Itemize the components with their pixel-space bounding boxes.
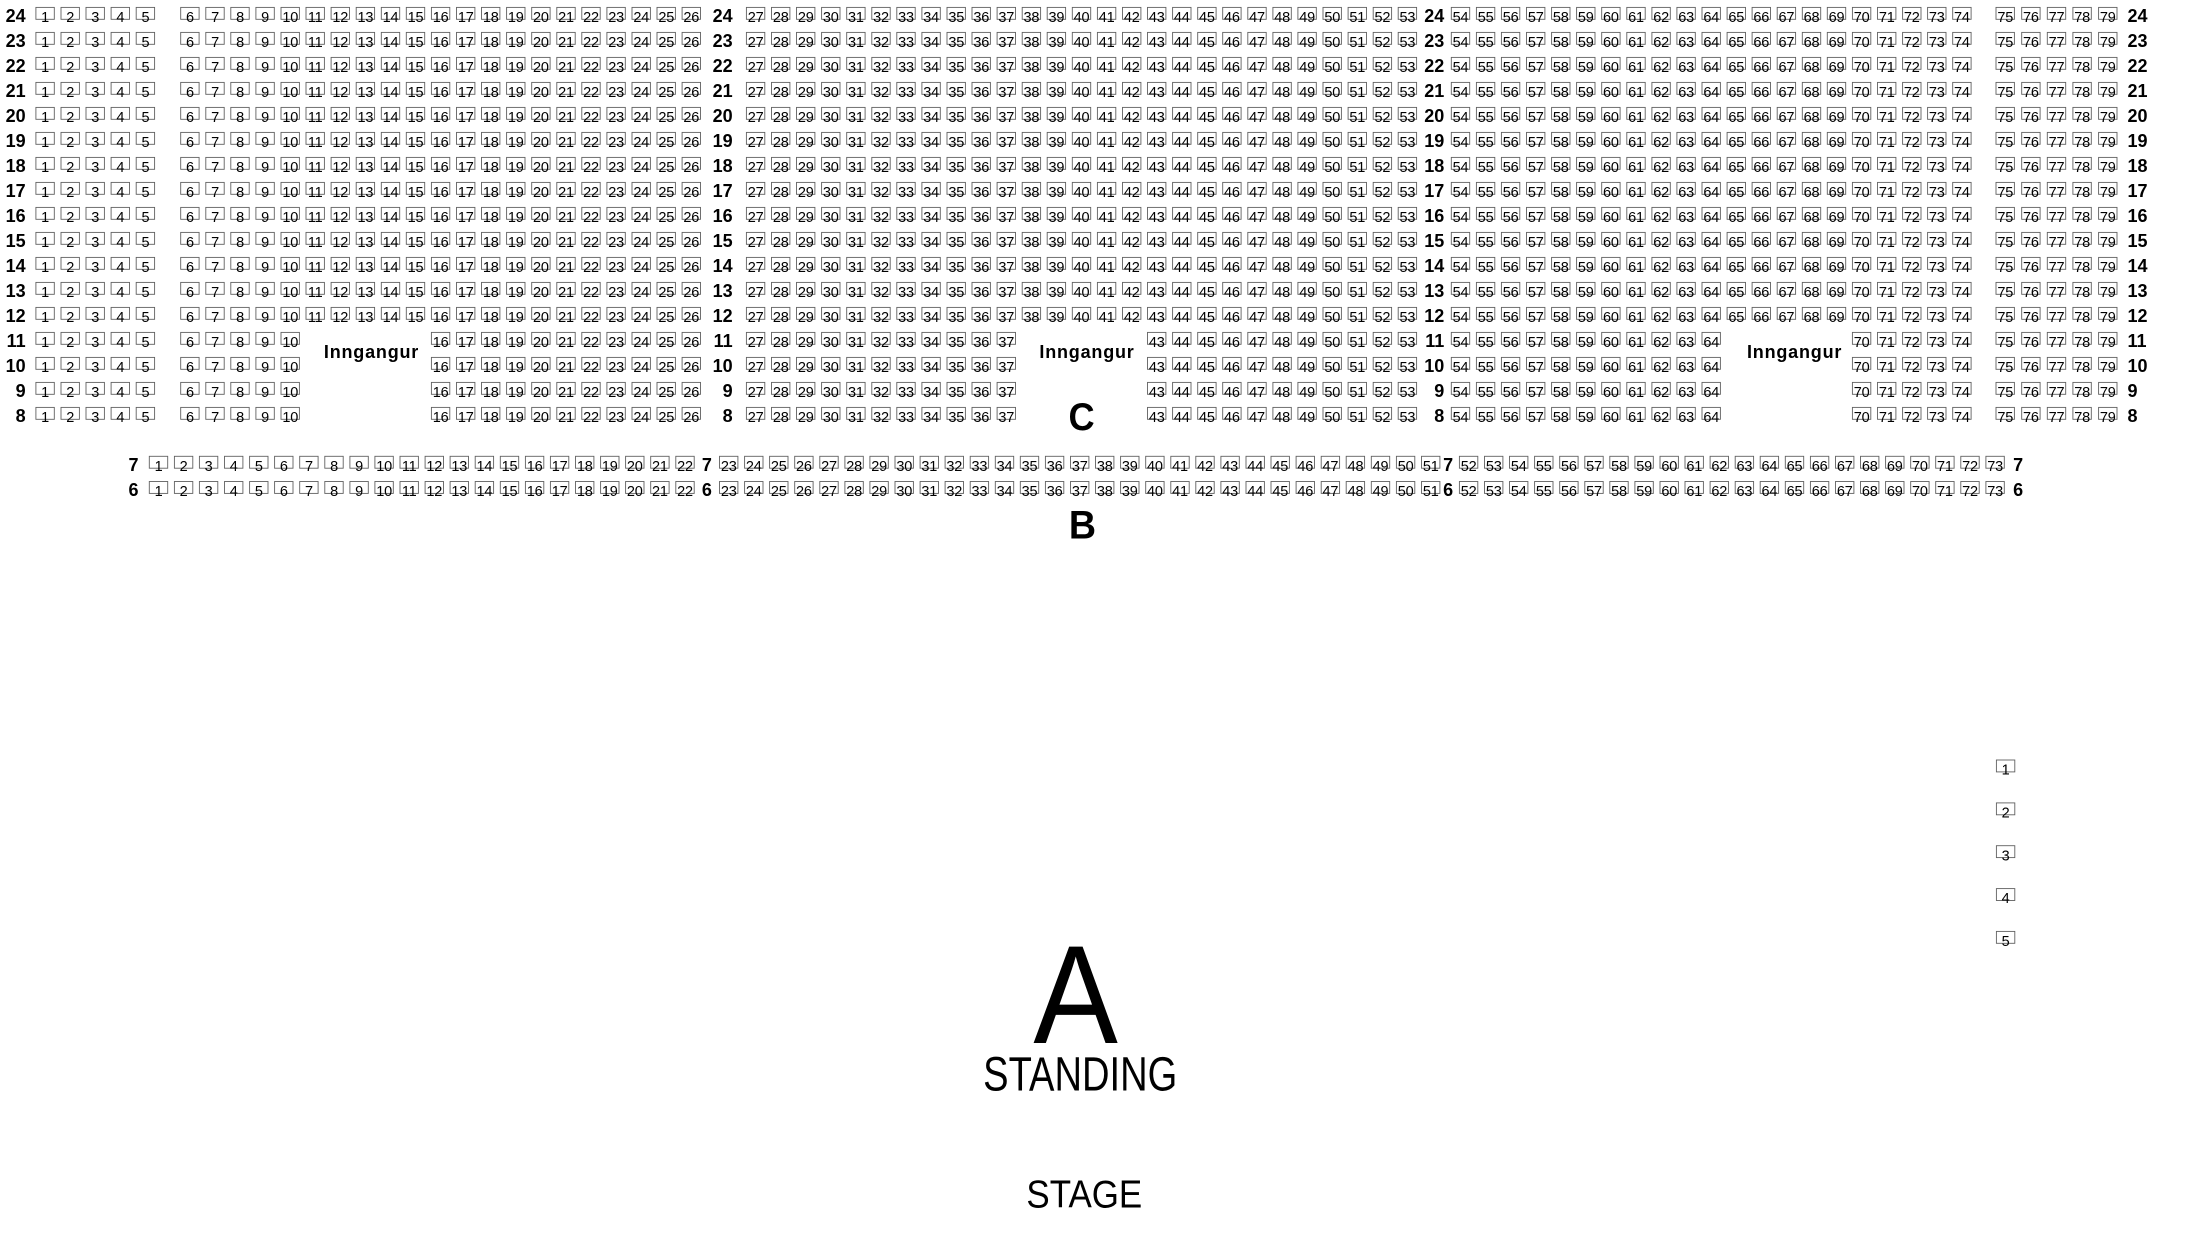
svg-text:34: 34 (923, 110, 939, 126)
svg-text:47: 47 (1249, 185, 1265, 201)
svg-text:21: 21 (2128, 81, 2148, 101)
svg-text:78: 78 (2074, 110, 2090, 126)
svg-text:68: 68 (1862, 484, 1878, 500)
svg-text:55: 55 (1478, 110, 1494, 126)
svg-text:43: 43 (1222, 459, 1238, 475)
svg-text:48: 48 (1274, 360, 1290, 376)
svg-text:70: 70 (1854, 285, 1870, 301)
svg-text:8: 8 (236, 135, 244, 151)
svg-text:32: 32 (873, 85, 889, 101)
svg-text:57: 57 (1528, 135, 1544, 151)
svg-text:70: 70 (1912, 459, 1928, 475)
svg-text:40: 40 (1074, 85, 1090, 101)
svg-text:23: 23 (608, 285, 624, 301)
svg-text:76: 76 (2023, 160, 2039, 176)
svg-text:22: 22 (677, 459, 693, 475)
svg-text:11: 11 (7, 331, 26, 351)
svg-text:30: 30 (823, 385, 839, 401)
svg-text:43: 43 (1149, 185, 1165, 201)
svg-text:22: 22 (6, 56, 26, 76)
svg-text:1: 1 (41, 385, 49, 401)
svg-text:10: 10 (376, 459, 392, 475)
svg-text:53: 53 (1400, 185, 1416, 201)
svg-text:57: 57 (1528, 185, 1544, 201)
svg-text:17: 17 (458, 235, 474, 251)
svg-text:20: 20 (2128, 106, 2148, 126)
svg-text:62: 62 (1711, 484, 1727, 500)
svg-text:36: 36 (973, 10, 989, 26)
svg-text:1: 1 (155, 459, 163, 475)
svg-text:13: 13 (358, 85, 374, 101)
svg-text:11: 11 (308, 160, 323, 176)
svg-text:68: 68 (1804, 285, 1820, 301)
svg-text:9: 9 (261, 410, 269, 426)
svg-text:55: 55 (1478, 310, 1494, 326)
svg-text:34: 34 (923, 385, 939, 401)
svg-text:2: 2 (66, 285, 74, 301)
svg-text:41: 41 (1099, 10, 1115, 26)
svg-text:35: 35 (948, 10, 964, 26)
svg-text:45: 45 (1199, 360, 1215, 376)
svg-text:32: 32 (873, 410, 889, 426)
svg-text:68: 68 (1804, 10, 1820, 26)
svg-text:61: 61 (1628, 285, 1644, 301)
svg-text:5: 5 (141, 385, 149, 401)
svg-text:15: 15 (1424, 231, 1444, 251)
svg-text:56: 56 (1503, 335, 1519, 351)
svg-text:10: 10 (282, 210, 298, 226)
svg-text:72: 72 (1904, 210, 1920, 226)
svg-text:15: 15 (6, 231, 26, 251)
svg-text:31: 31 (848, 260, 864, 276)
svg-text:53: 53 (1400, 410, 1416, 426)
svg-text:19: 19 (602, 484, 618, 500)
svg-text:20: 20 (533, 85, 549, 101)
svg-text:36: 36 (973, 410, 989, 426)
svg-text:56: 56 (1503, 160, 1519, 176)
svg-text:44: 44 (1174, 85, 1190, 101)
svg-text:28: 28 (773, 85, 789, 101)
svg-text:18: 18 (483, 60, 499, 76)
svg-text:29: 29 (798, 60, 814, 76)
svg-text:72: 72 (1904, 135, 1920, 151)
svg-text:67: 67 (1779, 110, 1795, 126)
svg-text:23: 23 (608, 410, 624, 426)
svg-text:48: 48 (1274, 310, 1290, 326)
svg-text:63: 63 (1737, 484, 1753, 500)
svg-text:35: 35 (948, 235, 964, 251)
svg-text:58: 58 (1553, 210, 1569, 226)
svg-text:61: 61 (1628, 185, 1644, 201)
svg-text:37: 37 (998, 385, 1014, 401)
svg-text:49: 49 (1299, 260, 1315, 276)
svg-text:71: 71 (1879, 110, 1895, 126)
svg-text:11: 11 (714, 331, 733, 351)
svg-text:22: 22 (583, 285, 599, 301)
svg-text:49: 49 (1299, 35, 1315, 51)
svg-text:75: 75 (1997, 10, 2013, 26)
svg-text:49: 49 (1373, 459, 1389, 475)
svg-text:51: 51 (1349, 35, 1365, 51)
svg-text:68: 68 (1804, 235, 1820, 251)
svg-text:39: 39 (1049, 35, 1065, 51)
svg-text:18: 18 (483, 35, 499, 51)
svg-text:41: 41 (1099, 210, 1115, 226)
svg-text:42: 42 (1124, 60, 1140, 76)
svg-text:34: 34 (923, 335, 939, 351)
svg-text:51: 51 (1349, 360, 1365, 376)
svg-text:66: 66 (1753, 260, 1769, 276)
svg-text:79: 79 (2100, 235, 2116, 251)
svg-text:61: 61 (1628, 360, 1644, 376)
svg-text:29: 29 (798, 110, 814, 126)
svg-text:35: 35 (948, 385, 964, 401)
svg-text:50: 50 (1324, 10, 1340, 26)
svg-text:28: 28 (773, 260, 789, 276)
svg-text:30: 30 (823, 360, 839, 376)
svg-text:68: 68 (1804, 160, 1820, 176)
svg-text:33: 33 (898, 410, 914, 426)
svg-text:74: 74 (1954, 60, 1970, 76)
svg-text:9: 9 (261, 10, 269, 26)
svg-text:18: 18 (483, 410, 499, 426)
svg-text:33: 33 (898, 135, 914, 151)
svg-text:52: 52 (1375, 85, 1391, 101)
svg-text:26: 26 (683, 35, 699, 51)
svg-text:55: 55 (1478, 60, 1494, 76)
svg-text:44: 44 (1174, 210, 1190, 226)
svg-text:51: 51 (1349, 110, 1365, 126)
svg-text:62: 62 (1711, 459, 1727, 475)
svg-text:68: 68 (1804, 210, 1820, 226)
svg-text:67: 67 (1779, 235, 1795, 251)
svg-text:15: 15 (408, 10, 424, 26)
svg-text:34: 34 (923, 260, 939, 276)
svg-text:37: 37 (1072, 484, 1088, 500)
svg-text:76: 76 (2023, 310, 2039, 326)
svg-text:45: 45 (1199, 85, 1215, 101)
svg-text:26: 26 (796, 459, 812, 475)
svg-text:49: 49 (1299, 185, 1315, 201)
svg-text:60: 60 (1661, 459, 1677, 475)
svg-text:13: 13 (358, 310, 374, 326)
svg-text:72: 72 (1904, 335, 1920, 351)
svg-text:39: 39 (1049, 260, 1065, 276)
svg-text:59: 59 (1578, 235, 1594, 251)
svg-text:8: 8 (236, 185, 244, 201)
svg-text:56: 56 (1503, 135, 1519, 151)
svg-text:7: 7 (211, 260, 219, 276)
svg-text:35: 35 (1022, 484, 1038, 500)
svg-text:57: 57 (1586, 459, 1602, 475)
svg-text:73: 73 (1929, 35, 1945, 51)
svg-text:6: 6 (186, 185, 194, 201)
svg-text:67: 67 (1779, 35, 1795, 51)
svg-text:72: 72 (1904, 35, 1920, 51)
svg-text:3: 3 (205, 459, 213, 475)
svg-text:75: 75 (1997, 185, 2013, 201)
svg-text:29: 29 (798, 285, 814, 301)
svg-text:60: 60 (1603, 235, 1619, 251)
svg-text:46: 46 (1224, 185, 1240, 201)
svg-text:8: 8 (236, 210, 244, 226)
svg-text:14: 14 (383, 60, 399, 76)
svg-text:59: 59 (1578, 160, 1594, 176)
svg-text:64: 64 (1703, 10, 1719, 26)
svg-text:70: 70 (1854, 410, 1870, 426)
svg-text:38: 38 (1024, 260, 1040, 276)
svg-text:66: 66 (1812, 484, 1828, 500)
svg-text:23: 23 (713, 31, 733, 51)
svg-text:71: 71 (1879, 335, 1895, 351)
svg-text:6: 6 (186, 310, 194, 326)
svg-text:37: 37 (998, 335, 1014, 351)
svg-text:2: 2 (66, 360, 74, 376)
svg-text:33: 33 (898, 160, 914, 176)
svg-text:66: 66 (1753, 235, 1769, 251)
svg-text:74: 74 (1954, 185, 1970, 201)
svg-text:15: 15 (408, 185, 424, 201)
svg-text:31: 31 (848, 35, 864, 51)
svg-text:51: 51 (1349, 160, 1365, 176)
svg-text:3: 3 (91, 260, 99, 276)
svg-text:69: 69 (1829, 110, 1845, 126)
svg-text:34: 34 (923, 210, 939, 226)
svg-text:70: 70 (1854, 160, 1870, 176)
svg-text:9: 9 (1434, 381, 1444, 401)
svg-text:16: 16 (713, 206, 733, 226)
svg-text:53: 53 (1400, 60, 1416, 76)
svg-text:77: 77 (2049, 310, 2065, 326)
svg-text:6: 6 (2013, 480, 2023, 500)
svg-text:7: 7 (211, 210, 219, 226)
svg-text:27: 27 (748, 410, 764, 426)
svg-text:61: 61 (1628, 410, 1644, 426)
svg-text:11: 11 (308, 235, 323, 251)
svg-text:40: 40 (1074, 160, 1090, 176)
svg-text:51: 51 (1349, 10, 1365, 26)
svg-text:45: 45 (1199, 185, 1215, 201)
svg-text:39: 39 (1049, 210, 1065, 226)
svg-text:1: 1 (41, 110, 49, 126)
svg-text:62: 62 (1653, 310, 1669, 326)
svg-text:72: 72 (1904, 110, 1920, 126)
svg-text:45: 45 (1199, 235, 1215, 251)
svg-text:64: 64 (1762, 459, 1778, 475)
svg-text:10: 10 (713, 356, 733, 376)
svg-text:31: 31 (848, 110, 864, 126)
svg-text:29: 29 (798, 385, 814, 401)
svg-text:39: 39 (1049, 160, 1065, 176)
svg-text:46: 46 (1224, 260, 1240, 276)
svg-text:22: 22 (583, 185, 599, 201)
svg-text:3: 3 (91, 410, 99, 426)
svg-text:9: 9 (261, 285, 269, 301)
svg-text:45: 45 (1199, 260, 1215, 276)
svg-text:65: 65 (1728, 185, 1744, 201)
svg-text:24: 24 (6, 6, 26, 26)
svg-text:44: 44 (1174, 360, 1190, 376)
svg-text:34: 34 (923, 310, 939, 326)
svg-text:6: 6 (280, 484, 288, 500)
svg-text:18: 18 (577, 459, 593, 475)
svg-text:40: 40 (1074, 135, 1090, 151)
svg-text:10: 10 (376, 484, 392, 500)
svg-text:78: 78 (2074, 185, 2090, 201)
svg-text:26: 26 (683, 335, 699, 351)
svg-text:33: 33 (898, 235, 914, 251)
svg-text:61: 61 (1628, 335, 1644, 351)
svg-text:62: 62 (1653, 110, 1669, 126)
svg-text:45: 45 (1199, 110, 1215, 126)
svg-text:71: 71 (1937, 459, 1953, 475)
svg-text:13: 13 (358, 60, 374, 76)
svg-text:70: 70 (1854, 260, 1870, 276)
svg-text:57: 57 (1528, 335, 1544, 351)
svg-text:26: 26 (683, 85, 699, 101)
svg-text:71: 71 (1879, 160, 1895, 176)
svg-text:43: 43 (1149, 285, 1165, 301)
svg-text:14: 14 (2128, 256, 2148, 276)
svg-text:32: 32 (873, 35, 889, 51)
svg-text:45: 45 (1199, 60, 1215, 76)
svg-text:76: 76 (2023, 85, 2039, 101)
svg-text:26: 26 (683, 210, 699, 226)
svg-text:6: 6 (186, 85, 194, 101)
svg-text:37: 37 (998, 60, 1014, 76)
svg-text:50: 50 (1324, 335, 1340, 351)
svg-text:6: 6 (128, 480, 138, 500)
svg-text:65: 65 (1728, 235, 1744, 251)
svg-text:73: 73 (1929, 235, 1945, 251)
svg-text:79: 79 (2100, 110, 2116, 126)
svg-text:14: 14 (6, 256, 26, 276)
svg-text:50: 50 (1398, 484, 1414, 500)
svg-text:76: 76 (2023, 110, 2039, 126)
svg-text:56: 56 (1503, 210, 1519, 226)
svg-text:30: 30 (823, 185, 839, 201)
svg-text:6: 6 (186, 260, 194, 276)
svg-text:65: 65 (1728, 110, 1744, 126)
svg-text:16: 16 (433, 35, 449, 51)
svg-text:43: 43 (1149, 385, 1165, 401)
svg-text:8: 8 (236, 410, 244, 426)
svg-text:78: 78 (2074, 360, 2090, 376)
svg-text:69: 69 (1829, 85, 1845, 101)
svg-text:17: 17 (458, 335, 474, 351)
svg-text:53: 53 (1400, 360, 1416, 376)
svg-text:52: 52 (1375, 60, 1391, 76)
svg-text:24: 24 (633, 110, 649, 126)
svg-text:74: 74 (1954, 310, 1970, 326)
svg-text:70: 70 (1854, 35, 1870, 51)
svg-text:27: 27 (748, 285, 764, 301)
svg-text:69: 69 (1887, 484, 1903, 500)
svg-text:19: 19 (2128, 131, 2148, 151)
svg-text:79: 79 (2100, 10, 2116, 26)
svg-text:74: 74 (1954, 360, 1970, 376)
svg-text:73: 73 (1929, 160, 1945, 176)
svg-text:37: 37 (998, 410, 1014, 426)
svg-text:12: 12 (332, 10, 348, 26)
svg-text:65: 65 (1728, 60, 1744, 76)
svg-text:67: 67 (1779, 260, 1795, 276)
svg-text:4: 4 (116, 110, 124, 126)
svg-text:63: 63 (1678, 160, 1694, 176)
svg-text:39: 39 (1049, 285, 1065, 301)
svg-text:17: 17 (6, 181, 26, 201)
svg-text:65: 65 (1787, 484, 1803, 500)
svg-text:27: 27 (748, 360, 764, 376)
svg-text:61: 61 (1628, 135, 1644, 151)
svg-text:30: 30 (823, 10, 839, 26)
svg-text:50: 50 (1324, 310, 1340, 326)
svg-text:59: 59 (1578, 335, 1594, 351)
svg-text:58: 58 (1553, 185, 1569, 201)
svg-text:42: 42 (1124, 235, 1140, 251)
svg-text:36: 36 (973, 385, 989, 401)
svg-text:50: 50 (1324, 85, 1340, 101)
svg-text:48: 48 (1274, 60, 1290, 76)
svg-text:48: 48 (1274, 335, 1290, 351)
svg-text:60: 60 (1603, 110, 1619, 126)
svg-text:38: 38 (1024, 235, 1040, 251)
svg-text:10: 10 (282, 260, 298, 276)
svg-text:53: 53 (1400, 260, 1416, 276)
svg-text:35: 35 (948, 360, 964, 376)
svg-text:20: 20 (533, 160, 549, 176)
svg-text:72: 72 (1904, 310, 1920, 326)
svg-text:41: 41 (1099, 60, 1115, 76)
svg-text:62: 62 (1653, 260, 1669, 276)
svg-text:7: 7 (211, 335, 219, 351)
svg-text:17: 17 (458, 60, 474, 76)
svg-text:60: 60 (1603, 185, 1619, 201)
svg-text:32: 32 (873, 10, 889, 26)
svg-text:8: 8 (16, 406, 26, 426)
svg-text:40: 40 (1074, 260, 1090, 276)
svg-text:34: 34 (923, 185, 939, 201)
svg-text:17: 17 (458, 35, 474, 51)
svg-text:71: 71 (1879, 260, 1895, 276)
svg-text:59: 59 (1636, 484, 1652, 500)
svg-text:64: 64 (1703, 285, 1719, 301)
svg-text:52: 52 (1375, 185, 1391, 201)
svg-text:21: 21 (558, 85, 574, 101)
svg-text:49: 49 (1299, 60, 1315, 76)
svg-text:70: 70 (1854, 310, 1870, 326)
svg-text:14: 14 (383, 260, 399, 276)
svg-text:68: 68 (1804, 310, 1820, 326)
svg-text:45: 45 (1199, 210, 1215, 226)
svg-text:29: 29 (798, 260, 814, 276)
svg-text:34: 34 (923, 235, 939, 251)
svg-text:57: 57 (1528, 210, 1544, 226)
svg-text:60: 60 (1603, 260, 1619, 276)
svg-text:19: 19 (508, 85, 524, 101)
svg-text:56: 56 (1561, 484, 1577, 500)
svg-text:73: 73 (1929, 335, 1945, 351)
svg-text:70: 70 (1854, 135, 1870, 151)
svg-text:40: 40 (1074, 285, 1090, 301)
svg-text:8: 8 (236, 35, 244, 51)
svg-text:41: 41 (1099, 135, 1115, 151)
svg-text:27: 27 (748, 260, 764, 276)
svg-text:45: 45 (1199, 310, 1215, 326)
svg-text:STAGE: STAGE (1026, 1172, 1142, 1216)
svg-text:48: 48 (1274, 385, 1290, 401)
svg-text:51: 51 (1349, 210, 1365, 226)
